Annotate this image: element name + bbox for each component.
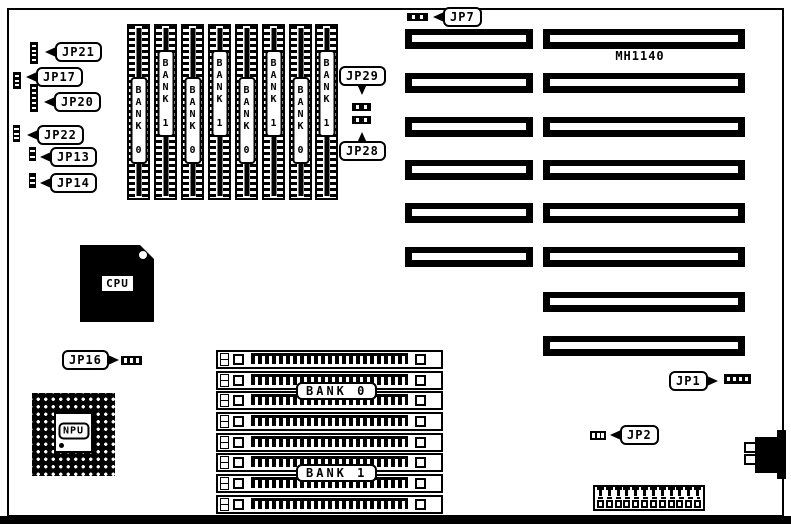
npu-pin1-dot	[59, 443, 64, 448]
vertical-simm-socket-1: BANK 0	[127, 24, 150, 200]
vertical-simm-socket-2: BANK 1	[154, 24, 177, 200]
cpu-chip: CPU	[80, 245, 154, 322]
expansion-slot-short	[405, 160, 533, 180]
simm-latch	[415, 375, 426, 386]
npu-center-area: NPU	[54, 412, 93, 453]
power-pin	[597, 487, 604, 496]
expansion-slot-short	[405, 203, 533, 223]
simm-latch	[233, 354, 244, 365]
jp28-pointer-icon	[357, 132, 367, 143]
simm-latch	[233, 395, 244, 406]
expansion-slot-long	[543, 117, 745, 137]
power-socket	[615, 500, 622, 508]
cpu-label: CPU	[102, 276, 133, 291]
bank-label: BANK 0	[184, 77, 201, 164]
npu-label: NPU	[58, 422, 89, 439]
horizontal-simm-socket-4	[216, 412, 443, 431]
expansion-slot-long	[543, 292, 745, 312]
jp13-pointer-icon	[40, 152, 51, 162]
power-connector	[593, 485, 705, 511]
power-pins-row	[595, 487, 703, 497]
vertical-simm-socket-3: BANK 0	[181, 24, 204, 200]
jp22-label: JP22	[37, 125, 84, 145]
bank-label: BANK 1	[265, 50, 282, 137]
jp21-label-text: JP21	[62, 45, 95, 59]
keyboard-connector-port	[744, 454, 757, 465]
jp13-label-text: JP13	[57, 150, 90, 164]
jp29-label-text: JP29	[346, 69, 379, 83]
jp20-label: JP20	[54, 92, 101, 112]
power-socket	[659, 500, 666, 508]
power-socket	[641, 500, 648, 508]
jp1-pointer-icon	[707, 376, 718, 386]
simm-latch	[415, 499, 426, 510]
bank-label: BANK 1	[211, 50, 228, 137]
jp2-label-text: JP2	[627, 428, 652, 442]
bank1-label: BANK 1	[296, 464, 377, 482]
power-socket	[606, 500, 613, 508]
jp22-jumper-block	[13, 125, 20, 142]
board-bottom-edge	[0, 516, 791, 524]
power-pin	[650, 487, 657, 496]
expansion-slot-short	[405, 73, 533, 93]
power-pin	[615, 487, 622, 496]
vertical-simm-socket-8: BANK 1	[315, 24, 338, 200]
jp16-label: JP16	[62, 350, 109, 370]
simm-pins	[251, 415, 408, 426]
jp17-pointer-icon	[26, 72, 37, 82]
expansion-slot-short	[405, 247, 533, 267]
jp14-label-text: JP14	[57, 176, 90, 190]
keyboard-connector-shell	[755, 437, 779, 473]
keyboard-connector-port	[744, 442, 757, 453]
vertical-simm-socket-7: BANK 0	[289, 24, 312, 200]
jp17-label: JP17	[36, 67, 83, 87]
jp7-label: JP7	[443, 7, 482, 27]
jp1-jumper-block	[724, 374, 751, 384]
expansion-slot-long	[543, 73, 745, 93]
vertical-simm-socket-6: BANK 1	[262, 24, 285, 200]
bank-label: BANK 0	[130, 77, 147, 164]
simm-pins	[251, 353, 408, 364]
jp7-jumper-block	[407, 13, 428, 21]
jp2-pointer-icon	[610, 430, 621, 440]
expansion-slot-short	[405, 117, 533, 137]
vertical-simm-socket-5: BANK 0	[235, 24, 258, 200]
power-pin	[685, 487, 692, 496]
vertical-simm-socket-4: BANK 1	[208, 24, 231, 200]
jp14-jumper-block	[29, 173, 36, 188]
power-socket	[632, 500, 639, 508]
jp7-label-text: JP7	[450, 10, 475, 24]
expansion-slot-long	[543, 247, 745, 267]
expansion-slot-long	[543, 336, 745, 356]
npu-socket: NPU	[32, 393, 115, 476]
bank-label: BANK 0	[292, 77, 309, 164]
jp2-label: JP2	[620, 425, 659, 445]
power-pin	[659, 487, 666, 496]
jp1-label: JP1	[669, 371, 708, 391]
simm-latch	[233, 457, 244, 468]
jp17-jumper-block	[13, 72, 21, 89]
expansion-slot-long	[543, 203, 745, 223]
jp16-jumper-block	[121, 356, 142, 365]
jp16-label-text: JP16	[69, 353, 102, 367]
power-socket	[694, 500, 701, 508]
power-pin	[606, 487, 613, 496]
cpu-pin1-dot	[139, 251, 147, 259]
simm-latch	[233, 437, 244, 448]
jp21-pointer-icon	[45, 47, 56, 57]
bank-label: BANK 1	[318, 50, 335, 137]
jp20-label-text: JP20	[61, 95, 94, 109]
jp21-label: JP21	[55, 42, 102, 62]
power-contacts-row	[598, 497, 700, 499]
simm-pins	[251, 436, 408, 447]
horizontal-simm-socket-1	[216, 350, 443, 369]
jp22-pointer-icon	[27, 130, 38, 140]
jp14-label: JP14	[50, 173, 97, 193]
power-sockets-row	[595, 500, 703, 508]
jp7-pointer-icon	[433, 12, 444, 22]
power-socket	[597, 500, 604, 508]
expansion-slot-long	[543, 29, 745, 49]
jp16-pointer-icon	[108, 355, 119, 365]
power-socket	[685, 500, 692, 508]
power-pin	[641, 487, 648, 496]
power-pin	[632, 487, 639, 496]
jp22-label-text: JP22	[44, 128, 77, 142]
simm-latch	[415, 395, 426, 406]
expansion-slot-long	[543, 160, 745, 180]
simm-latch	[415, 437, 426, 448]
simm-latch	[233, 478, 244, 489]
simm-latch	[415, 354, 426, 365]
bank-label: BANK 0	[238, 77, 255, 164]
simm-latch	[233, 416, 244, 427]
power-pin	[676, 487, 683, 496]
simm-latch	[233, 375, 244, 386]
jp17-label-text: JP17	[43, 70, 76, 84]
power-pin	[694, 487, 701, 496]
power-socket	[676, 500, 683, 508]
horizontal-simm-socket-8	[216, 495, 443, 514]
jp14-pointer-icon	[40, 178, 51, 188]
jp13-label: JP13	[50, 147, 97, 167]
jp29-jumper-block	[352, 103, 371, 111]
jp29-pointer-icon	[357, 84, 367, 95]
jp21-jumper-block	[30, 42, 38, 64]
jp2-jumper-block	[590, 431, 606, 440]
simm-latch	[415, 478, 426, 489]
power-pin	[623, 487, 630, 496]
power-socket	[668, 500, 675, 508]
simm-latch	[233, 499, 244, 510]
bank-label: BANK 1	[157, 50, 174, 137]
power-pin	[668, 487, 675, 496]
simm-latch	[415, 416, 426, 427]
expansion-slot-short	[405, 29, 533, 49]
simm-pins	[251, 498, 408, 509]
jp20-jumper-block	[30, 84, 38, 112]
motherboard-diagram: JP21 JP17 JP20 JP22 JP13 JP14 BANK 0 BAN…	[0, 0, 791, 527]
board-model-label: MH1140	[595, 49, 685, 63]
jp28-label-text: JP28	[346, 144, 379, 158]
jp20-pointer-icon	[44, 97, 55, 107]
simm-latch	[415, 457, 426, 468]
jp13-jumper-block	[29, 147, 36, 161]
jp28-label: JP28	[339, 141, 386, 161]
jp1-label-text: JP1	[676, 374, 701, 388]
power-socket	[650, 500, 657, 508]
jp29-label: JP29	[339, 66, 386, 86]
power-socket	[623, 500, 630, 508]
jp28-jumper-block	[352, 116, 371, 124]
horizontal-simm-socket-5	[216, 433, 443, 452]
bank0-label: BANK 0	[296, 382, 377, 400]
